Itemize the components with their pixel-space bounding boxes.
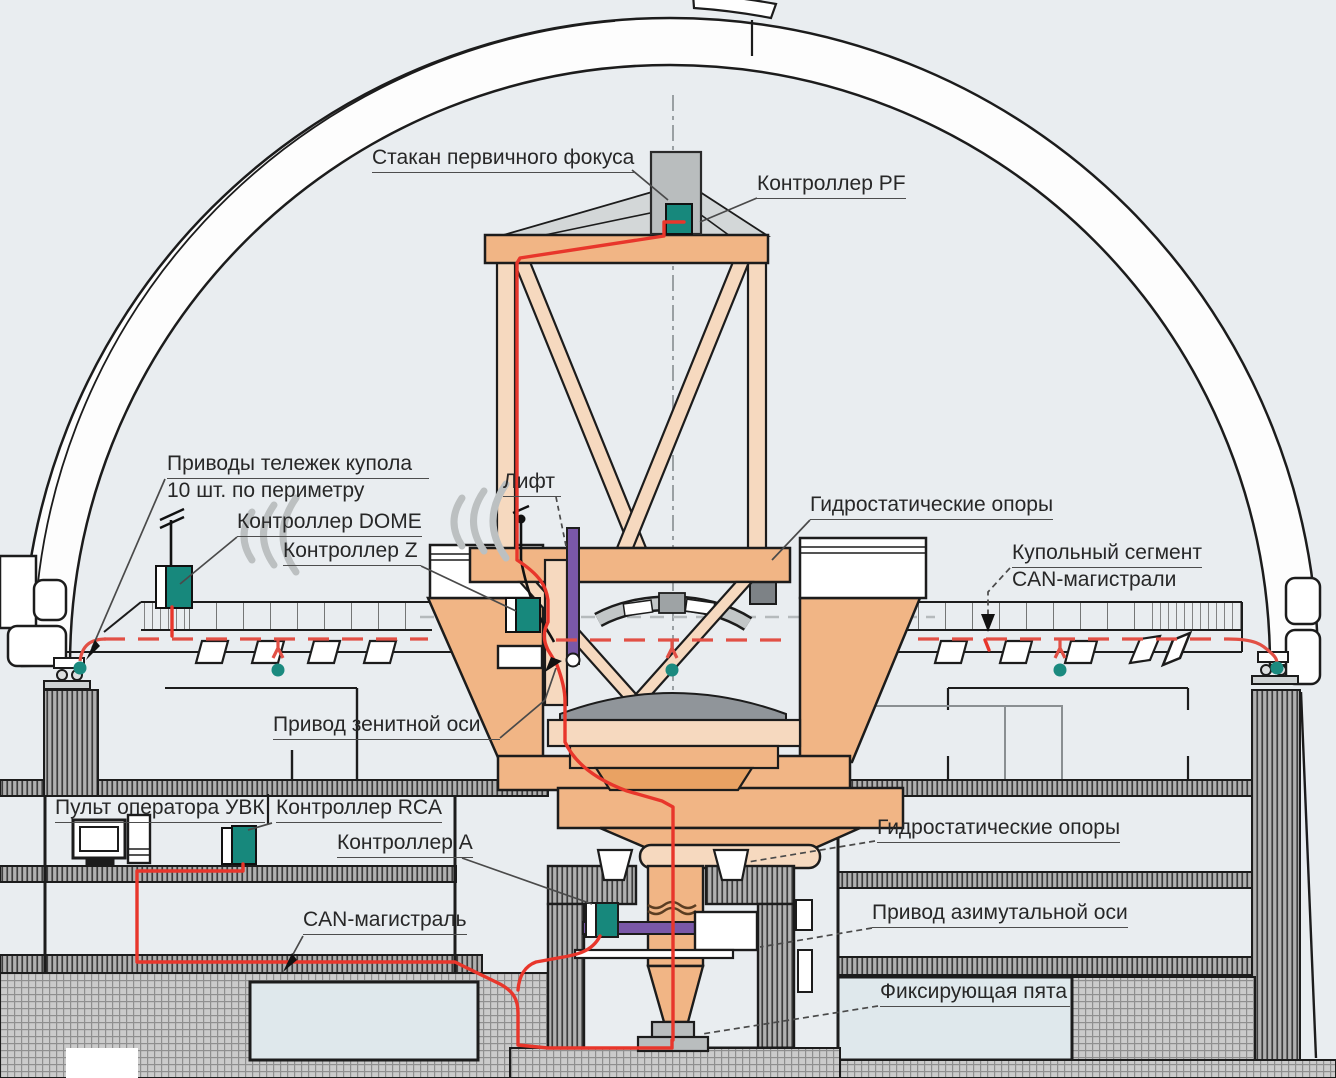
label-zenith-axis-drive: Привод зенитной оси — [273, 713, 500, 740]
label-primary-focus-cage: Стакан первичного фокуса — [372, 146, 634, 173]
label-can-bus: CAN-магистраль — [303, 908, 467, 935]
label-hydrostatic-supports-bottom: Гидростатические опоры — [877, 816, 1120, 843]
label-lift: Лифт — [503, 470, 561, 497]
label-controller-z: Контроллер Z — [283, 539, 421, 566]
zenith-drive-motor — [498, 646, 542, 668]
controller-z-box — [506, 598, 540, 632]
label-controller-pf: Контроллер PF — [757, 172, 906, 199]
label-azimuth-axis-drive: Привод азимутальной оси — [872, 901, 1128, 928]
diagram-artwork — [0, 0, 1336, 1078]
controller-a-box — [586, 903, 618, 937]
controller-pf-box — [666, 204, 692, 234]
dome-ring-left — [104, 602, 432, 663]
label-fixing-heel: Фиксирующая пята — [880, 980, 1070, 1007]
label-controller-a: Контроллер A — [337, 831, 473, 858]
label-dome-segment: Купольный сегмент CAN-магистрали — [1012, 541, 1202, 592]
spider — [500, 192, 768, 236]
label-controller-dome: Контроллер DOME — [237, 510, 422, 537]
building-right — [838, 652, 1336, 1078]
controller-rca-box — [222, 826, 256, 864]
label-operator-console: Пульт оператора УВК — [55, 796, 265, 823]
label-controller-rca: Контроллер RCA — [276, 796, 442, 823]
label-dome-cart-drives: Приводы тележек купола 10 шт. по перимет… — [167, 452, 429, 503]
diagram-canvas: Стакан первичного фокуса Контроллер PF П… — [0, 0, 1336, 1078]
label-hydrostatic-supports-top: Гидростатические опоры — [810, 493, 1053, 520]
controller-dome-box — [156, 509, 192, 608]
dome-ring-right — [905, 602, 1242, 665]
